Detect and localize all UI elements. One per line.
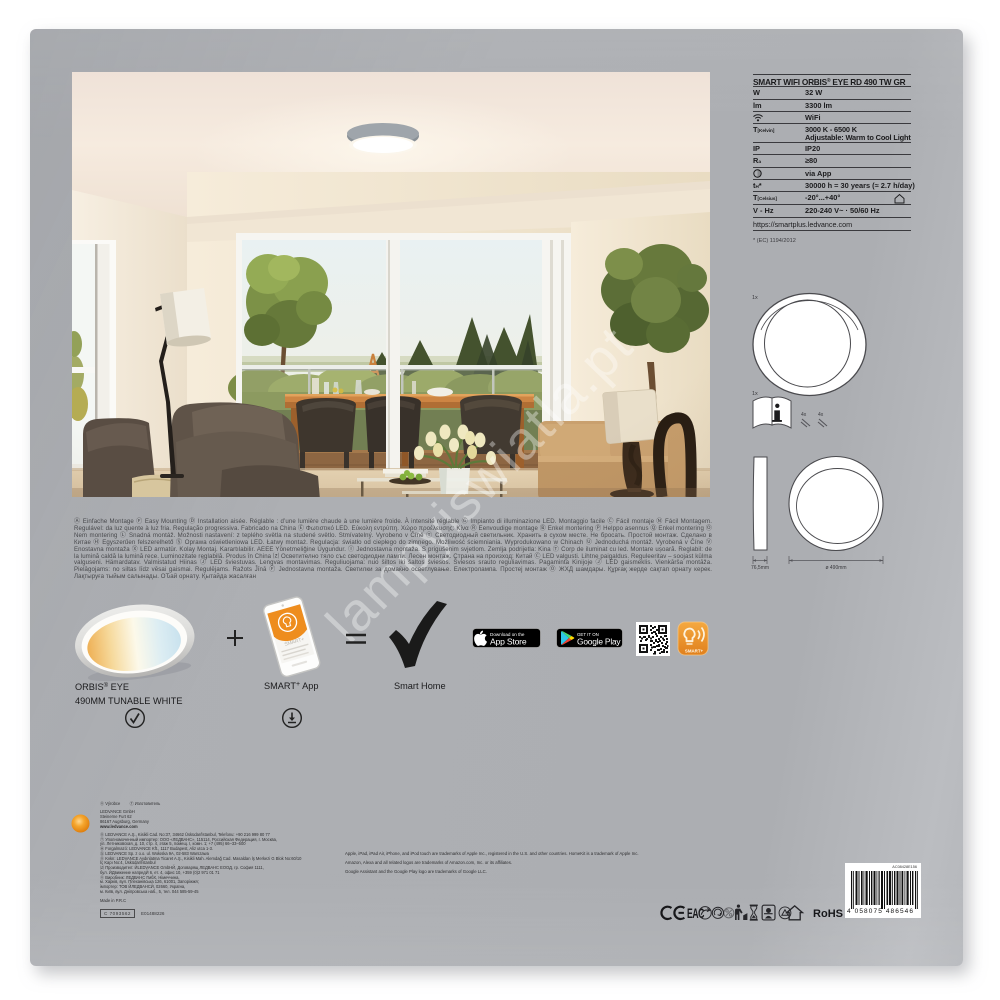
svg-text:4x: 4x [801,412,807,418]
svg-text:App Store: App Store [490,637,527,647]
svg-text:ø 490mm: ø 490mm [825,565,846,571]
svg-text:4x: 4x [818,412,824,418]
svg-text:Google Play: Google Play [577,637,621,647]
svg-text:RoHS: RoHS [813,908,843,920]
svg-text:76,5mm: 76,5mm [751,565,769,571]
svg-text:1x: 1x [752,295,758,301]
svg-text:1x: 1x [752,391,758,397]
svg-text:SMART+: SMART+ [685,649,704,654]
